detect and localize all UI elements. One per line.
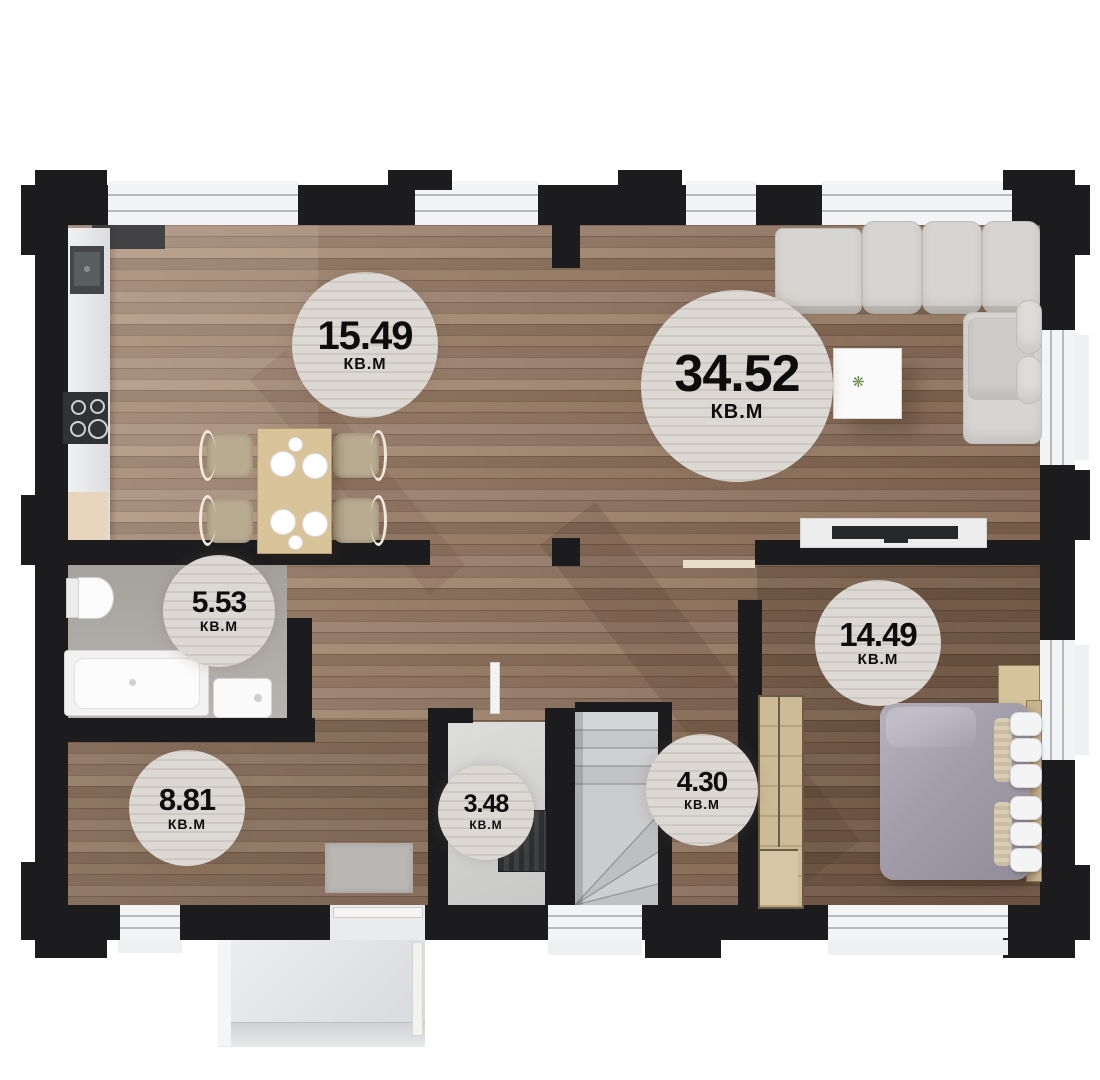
sill-bottom-window-2 [548,940,642,955]
stove-burner-3 [70,421,86,437]
area-unit: КВ.М [200,618,238,634]
wall-hall-top [68,718,315,742]
coffee-table-plant: ❋ [852,373,865,391]
kitchen-cutting-board [68,492,108,540]
bathtub-drain [129,679,136,686]
area-badge-boiler-room: 3.48 КВ.М [438,764,534,860]
area-unit: КВ.М [343,356,386,374]
sofa-cushion-1 [775,228,862,314]
pilaster-right-3 [1075,865,1090,940]
bathtub [64,650,209,716]
bedroom-door-threshold [683,560,755,568]
area-unit: КВ.М [858,651,899,668]
sill-bottom-window-1 [118,940,182,953]
area-unit: КВ.М [711,401,764,424]
tv-screen [832,526,958,539]
kitchen-sink-drain [84,266,90,272]
wall-top-seg3 [538,185,686,225]
area-unit: КВ.М [469,818,502,832]
dining-chair-2 [207,498,253,543]
saucer-1 [288,437,303,452]
area-value: 3.48 [464,792,509,818]
area-badge-stair-hall: 4.30 КВ.М [646,734,758,846]
dinner-plate-1 [270,451,296,477]
wardrobe-divider [778,697,780,847]
window-bottom-3 [828,905,1008,940]
sofa-arm-pillow-2 [1016,356,1042,404]
area-value: 15.49 [317,316,412,357]
boiler-door-leaf [490,662,500,714]
tv-stand [884,539,908,543]
pilaster-right-1 [1075,185,1090,255]
area-value: 14.49 [839,618,917,652]
dinner-plate-2 [302,453,328,479]
pilaster-left-2 [21,495,36,565]
bed-blanket-fold [886,707,976,747]
pilaster-bottom-left [35,938,107,958]
pilaster-bottom-right [1003,938,1075,958]
dining-chair-1 [207,433,253,478]
dining-chair-4 [333,498,379,543]
sill-right-window-2 [1075,645,1089,755]
pilaster-left-1 [21,185,36,255]
dining-chair-3 [333,433,379,478]
area-unit: КВ.М [168,816,206,832]
area-badge-kitchen-dining: 15.49 КВ.М [292,272,438,418]
saucer-2 [288,535,303,550]
pilaster-top-mid1 [388,170,452,190]
dinner-plate-3 [270,509,296,535]
window-right-bedroom [1040,640,1075,760]
wall-right-seg3 [1040,760,1075,940]
wardrobe [758,695,804,909]
pilaster-bottom-mid [645,938,721,958]
stove-burner-4 [88,419,108,439]
pilaster-left-3 [21,862,36,940]
bed-pillow-stack-1 [994,712,1040,790]
wall-bottom-seg2 [180,905,330,940]
sofa-cushion-2 [862,221,922,314]
pillow-2b [1010,822,1042,846]
column-center [552,538,580,566]
area-badge-bathroom: 5.53 КВ.М [163,555,275,667]
pilaster-right-2 [1075,470,1090,540]
area-badge-entry-hall: 8.81 КВ.М [129,750,245,866]
entry-door-leaf-open [412,942,423,1036]
bathroom-sink-drain [254,694,262,702]
window-bottom-2 [548,905,642,940]
dinner-plate-4 [302,511,328,537]
pillow-1b [1010,738,1042,762]
bed-pillow-stack-2 [994,796,1040,874]
wall-left [35,185,68,940]
pillow-1c [1010,764,1042,788]
window-top-1 [108,181,298,225]
wall-bottom-seg4 [642,905,828,940]
sill-right-window-1 [1075,335,1089,460]
area-value: 4.30 [677,768,728,797]
window-right-living [1040,330,1075,465]
window-top-3 [686,181,756,225]
wall-boiler-top-left [428,708,473,723]
wall-stub-top-center [552,225,580,268]
entry-door-leaf [333,907,423,918]
kitchen-sink [70,246,104,294]
pillow-2a [1010,796,1042,820]
bathroom-sink [213,678,272,718]
wall-boiler-stairs [545,708,575,905]
wall-right-seg2 [1040,465,1075,640]
sofa-cushion-3 [922,221,982,314]
coffee-table: ❋ [833,348,902,419]
wall-bottom-seg3 [425,905,548,940]
pillow-2c [1010,848,1042,872]
area-badge-bedroom: 14.49 КВ.М [815,580,941,706]
stove-burner-1 [71,400,86,415]
area-badge-living-room: 34.52 КВ.М [641,290,833,482]
pilaster-top-mid2 [618,170,682,190]
wall-top-seg4 [756,185,822,225]
dining-table [257,428,332,554]
entry-porch [218,940,425,1022]
sofa-arm-pillow-1 [1016,300,1042,354]
entry-porch-edge [218,940,231,1046]
area-value: 8.81 [159,784,215,816]
staircase [575,712,658,905]
wall-right-seg1 [1040,185,1075,330]
wardrobe-drawer [760,849,798,905]
stove-burner-2 [90,399,105,414]
entry-porch-step [218,1022,425,1047]
floor-plan-image: ❋ 15.49 КВ.М [0,0,1100,1080]
toilet-bowl [78,577,114,619]
pillow-1a [1010,712,1042,736]
window-top-4 [822,181,1012,225]
entry-doormat [325,843,413,893]
wall-bathroom-right [287,618,312,725]
area-value: 34.52 [674,348,799,401]
area-unit: КВ.М [684,797,720,812]
kitchen-stove [63,392,108,444]
window-bottom-1 [120,905,180,940]
area-value: 5.53 [192,588,246,619]
sill-bottom-window-3 [828,940,1008,955]
wall-top-seg2 [298,185,415,225]
bathtub-basin [74,658,200,709]
